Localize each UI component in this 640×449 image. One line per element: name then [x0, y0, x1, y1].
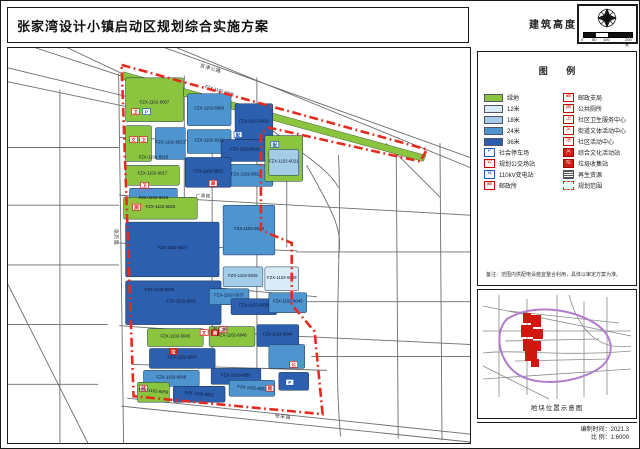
legend-item-label: 18米 [507, 115, 520, 124]
legend-item-label: 综合文化活动站 [578, 148, 620, 157]
legend-swatch-h18 [484, 116, 503, 124]
legend-item: 公规划公交场站 [484, 159, 557, 168]
map-facility-icon: 厕 [268, 385, 273, 392]
map-facility-icon: 厕 [134, 204, 139, 211]
legend-item: 活社区活动中心 [563, 137, 636, 146]
legend-item: 绿地 [484, 93, 557, 102]
block-code-label: FZX-1102-6022 [231, 171, 261, 176]
block-code-label: FZX-1102-6018 [139, 195, 169, 200]
block-code-label: FZX-1102-6021 [269, 158, 299, 163]
block-code-label: FZX-1102-6010 [239, 119, 269, 124]
block-code-label: FZX-1102-6045 [161, 334, 191, 339]
road-name-label: 张凤路 [113, 229, 120, 245]
legend-item: 36米 [484, 137, 557, 146]
block-code-label: FZX-1102-6014 [230, 146, 260, 151]
block-code-label: FZX-1102-6007 [140, 100, 170, 105]
block-code-label: FZX-1102-6050 [221, 372, 251, 377]
legend-icon [563, 170, 574, 179]
legend-item-label: 24米 [507, 126, 520, 135]
legend-icon: 公 [484, 159, 495, 168]
map-facility-icon: 文 [202, 329, 207, 336]
scale-tick: 100 [603, 37, 610, 42]
note-text: 备注：范围内供配电设施宜整合利用，具体以审定方案为准。 [486, 270, 561, 278]
block-code-label: FZX-1102-6009 [194, 106, 224, 111]
block-code-label: FZX-1102-6046 [217, 333, 247, 338]
legend-item-label: 公共厕所 [578, 104, 602, 113]
map-facility-icon: 配 [236, 131, 241, 138]
legend-item-label: 街道文体活动中心 [578, 126, 626, 135]
legend-icon: 厕 [563, 104, 574, 113]
legend-item: 12米 [484, 104, 557, 113]
legend-item: 厕公共厕所 [563, 104, 636, 113]
block-code-label: FZX-1102-6044 [263, 332, 293, 337]
legend-icon: 变 [484, 170, 495, 179]
location-inset-panel: 地块位置示意图 [477, 289, 637, 419]
legend-icon: 活 [563, 137, 574, 146]
legend-item-label: 社会停车场 [499, 148, 529, 157]
map-facility-icon: 文 [131, 136, 136, 143]
legend-item: 18米 [484, 115, 557, 124]
scale-tick: 200米 [625, 37, 635, 48]
legend-swatch-h36 [484, 138, 503, 146]
map-facility-icon: P [145, 109, 148, 114]
block-code-label: FZX-1102-6031 [167, 299, 197, 304]
location-inset-map [479, 291, 635, 401]
legend-swatch-g [484, 94, 503, 102]
legend-item: 卫社区卫生服务中心 [563, 115, 636, 124]
compass-icon [579, 6, 636, 30]
block-code-label: FZX-1102-6023 [193, 168, 223, 173]
map-facility-icon: 卫 [141, 136, 146, 143]
footer-panel: 编制时间：2021.3 比 例：1:6000 [477, 422, 637, 444]
legend-item: 变110kV变电站 [484, 170, 557, 179]
page-title: 张家湾设计小镇启动区规划综合实施方案 [8, 16, 269, 35]
plan-sheet: 张家湾设计小镇启动区规划综合实施方案 建筑高度 0 50 100 200米 [0, 0, 640, 449]
note-wrap: 备注：范围内供配电设施宜整合利用，具体以审定方案为准。 [486, 270, 636, 285]
map-type-label: 建筑高度 [493, 16, 577, 31]
block-code-label: FZX-1102-6030 [145, 287, 175, 292]
legend-icon: P [484, 148, 495, 157]
legend-item: 文综合文化活动站 [563, 148, 636, 157]
legend-item-label: 社区活动中心 [578, 137, 614, 146]
legend-item: 邮邮政支局 [563, 93, 636, 102]
legend-swatch-h24 [484, 127, 503, 135]
legend-item: P社会停车场 [484, 148, 557, 157]
legend-icon [563, 181, 574, 190]
legend-item-label: 110kV变电站 [499, 170, 534, 179]
block-code-label: FZX-1102-6043 [273, 299, 303, 304]
block-code-label: FZX-1102-6017 [138, 170, 168, 175]
legend-panel: 图 例 绿地12米18米24米36米P社会停车场公规划公交场站变110kV变电站… [477, 51, 637, 286]
main-map-panel: 卫P文卫配邮卫厕配文商卫垃公厕邮PFZX-1102-6007FZX-1102-6… [7, 47, 471, 444]
map-facility-icon: 卫 [142, 182, 147, 189]
legend-item-label: 垃圾收集站 [578, 159, 608, 168]
legend-item: 邮邮政所 [484, 181, 557, 190]
legend-item-label: 绿地 [507, 93, 519, 102]
block-code-label: FZX-1102-6026 [146, 204, 176, 209]
legend-item-label: 36米 [507, 137, 520, 146]
legend-item-label: 12米 [507, 104, 520, 113]
legend-item-label: 规划公交场站 [499, 159, 535, 168]
legend-item-label: 规划范围 [578, 181, 602, 190]
legend-item: 再生资源 [563, 170, 636, 179]
block-code-label: FZX-1102-6047 [168, 354, 198, 359]
scale-tick: 0 [581, 37, 583, 42]
map-facility-icon: P [288, 380, 291, 385]
scale-tick: 50 [592, 37, 596, 42]
block-code-label: FZX-1102-6015 [139, 154, 169, 159]
map-facility-icon: 邮 [211, 180, 216, 187]
legend-item-label: 再生资源 [578, 170, 602, 179]
legend-icon: 文 [563, 126, 574, 135]
map-block-h24 [269, 344, 305, 368]
inset-caption: 地块位置示意图 [478, 402, 636, 412]
footer-scale: 比 例：1:6000 [477, 434, 629, 442]
title-box: 张家湾设计小镇启动区规划综合实施方案 [7, 7, 469, 43]
legend-item-label: 邮政支局 [578, 93, 602, 102]
legend-item: 文街道文体活动中心 [563, 126, 636, 135]
block-code-label: FZX-1102-6013 [156, 140, 186, 145]
legend-columns: 绿地12米18米24米36米P社会停车场公规划公交场站变110kV变电站邮邮政所… [478, 93, 636, 192]
footer-date: 编制时间：2021.3 [477, 426, 629, 434]
legend-icon: 邮 [563, 93, 574, 102]
block-code-label: FZX-1102-6036 [228, 273, 258, 278]
legend-icon: 垃 [563, 159, 574, 168]
compass-box: 0 50 100 200米 [577, 4, 638, 44]
block-code-label: FZX-1102-6027 [158, 245, 188, 250]
road-name-label: 张采路 [274, 412, 291, 421]
legend-item: 规划范围 [563, 181, 636, 190]
block-code-label: FZX-1102-6011 [195, 138, 225, 143]
legend-swatch-h12 [484, 105, 503, 113]
legend-column-right: 邮邮政支局厕公共厕所卫社区卫生服务中心文街道文体活动中心活社区活动中心文综合文化… [557, 93, 636, 192]
block-code-label: FZX-1102-6038 [239, 303, 269, 308]
legend-icon: 卫 [563, 115, 574, 124]
block-code-label: FZX-1102-6037 [214, 293, 244, 298]
legend-icon: 文 [563, 148, 574, 157]
legend-item: 24米 [484, 126, 557, 135]
legend-item-label: 社区卫生服务中心 [578, 115, 626, 124]
plan-map: 卫P文卫配邮卫厕配文商卫垃公厕邮PFZX-1102-6007FZX-1102-6… [8, 48, 470, 443]
legend-title: 图 例 [478, 64, 636, 77]
legend-icon: 邮 [484, 181, 495, 190]
block-code-label: FZX-1102-6048 [157, 374, 187, 379]
legend-item-label: 邮政所 [499, 181, 517, 190]
legend-column-left: 绿地12米18米24米36米P社会停车场公规划公交场站变110kV变电站邮邮政所 [478, 93, 557, 192]
map-facility-icon: 配 [273, 141, 278, 148]
road-name-label: 广源路 [196, 192, 211, 200]
map-facility-icon: 卫 [133, 108, 138, 115]
legend-item: 垃垃圾收集站 [563, 159, 636, 168]
